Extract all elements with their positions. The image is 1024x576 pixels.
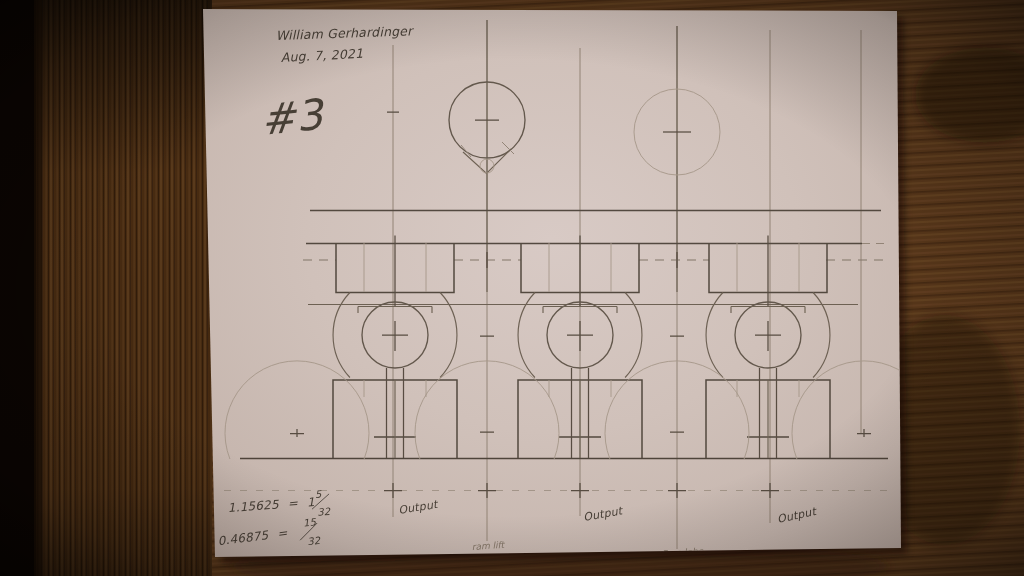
photo-vignette [0, 0, 1024, 576]
photo-canvas: William Gerhardinger Aug. 7, 2021 #3 1.1… [0, 0, 1024, 576]
photo-of-drafting-sheet: William Gerhardinger Aug. 7, 2021 #3 1.1… [0, 0, 1024, 576]
